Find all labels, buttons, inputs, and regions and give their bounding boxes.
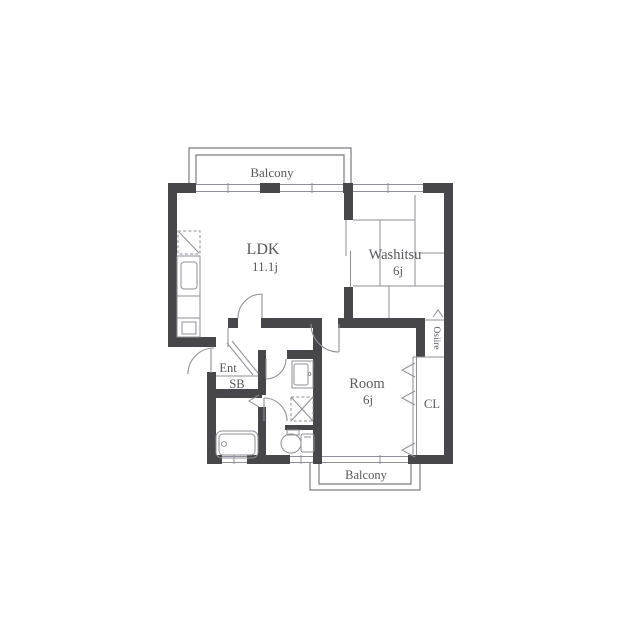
label-ldk-size: 11.1j [252,259,278,274]
toilet-door-arc [264,398,287,421]
label-closet: CL [424,397,440,411]
washing-machine-symbol [291,397,313,421]
window [322,455,408,464]
window [280,183,343,193]
kitchen-sink-symbol [181,262,197,289]
sliding-door-symbol [346,220,351,287]
washroom-door-arc [266,359,286,379]
oshiire-caret-icon [433,310,443,317]
label-ldk: LDK [247,241,280,258]
floorplan-drawing: Balcony LDK 11.1j Washitsu 6j Room 6j En… [0,0,640,640]
label-oshiire: Osiire [431,326,441,349]
label-entrance: Ent [219,361,237,375]
ldk-door-arc [238,294,262,318]
label-balcony-bottom: Balcony [345,468,387,482]
floorplan-canvas: Balcony LDK 11.1j Washitsu 6j Room 6j En… [0,0,640,640]
label-room-size: 6j [363,392,373,407]
label-washitsu: Washitsu [369,247,422,263]
vanity-sink-symbol [292,361,313,388]
window [196,183,260,193]
label-shoebox: SB [229,377,244,391]
window [290,455,313,464]
entry-door-arc [188,348,214,374]
walls [168,183,453,464]
label-washitsu-size: 6j [393,263,403,278]
window [222,455,247,464]
label-room: Room [349,376,385,392]
label-balcony-top: Balcony [250,165,294,180]
window [353,183,423,193]
refrigerator-symbol [178,231,200,254]
closet-door-track [413,357,417,455]
kitchen-counter-symbol [177,256,200,337]
toilet-symbol [281,430,314,453]
bathtub-symbol [216,431,258,458]
